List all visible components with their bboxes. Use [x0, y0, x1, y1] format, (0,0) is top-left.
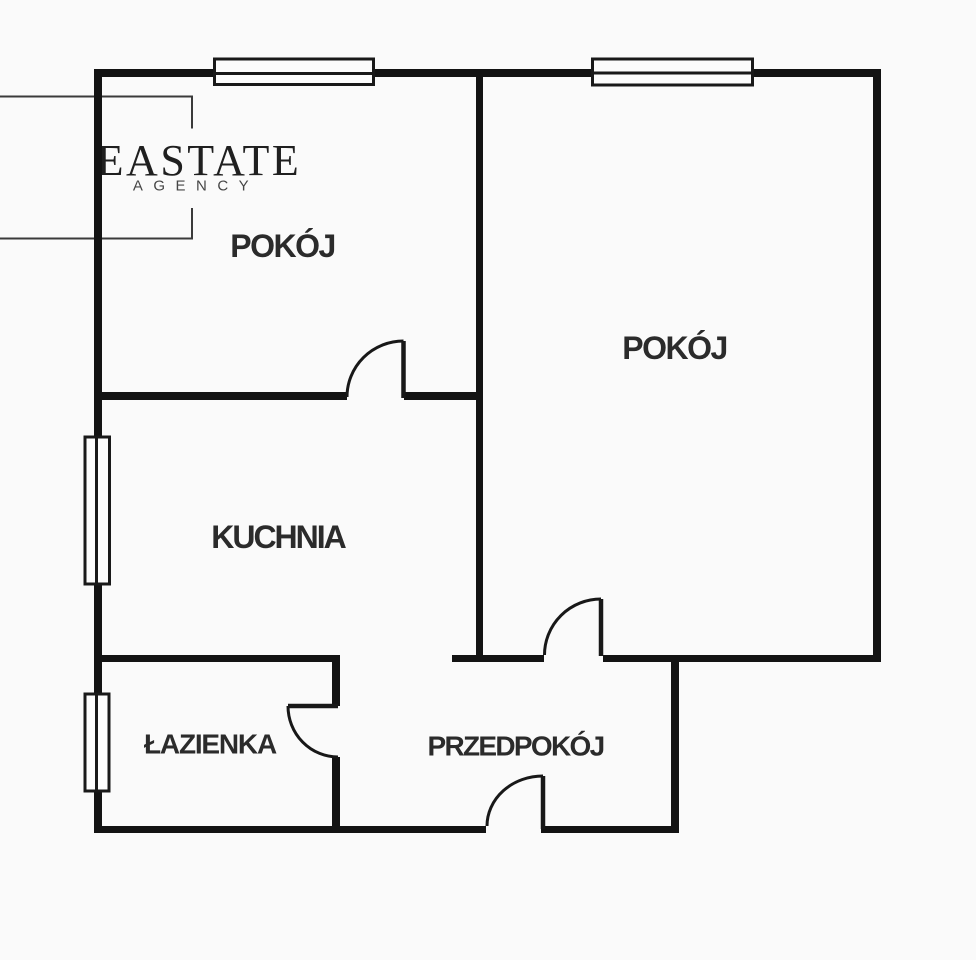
svg-text:AGENCY: AGENCY	[133, 178, 259, 195]
svg-text:ŁAZIENKA: ŁAZIENKA	[144, 729, 277, 760]
svg-text:POKÓJ: POKÓJ	[622, 330, 727, 366]
svg-text:KUCHNIA: KUCHNIA	[211, 519, 346, 555]
svg-text:POKÓJ: POKÓJ	[230, 228, 335, 264]
svg-text:PRZEDPOKÓJ: PRZEDPOKÓJ	[428, 731, 604, 762]
